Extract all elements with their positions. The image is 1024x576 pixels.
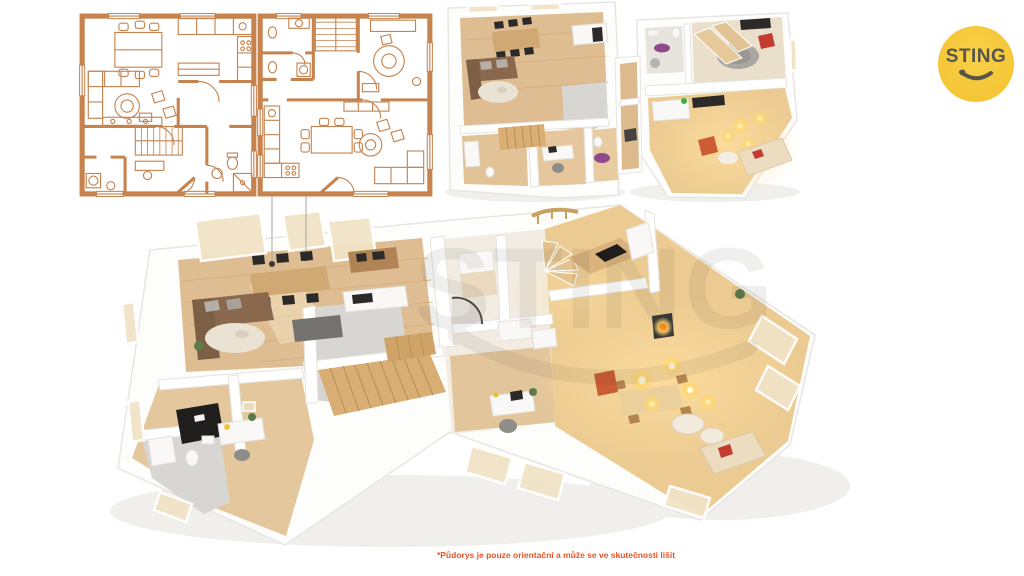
kitchen-2d <box>178 18 254 81</box>
sting-logo: STING <box>938 26 1014 102</box>
desk-2d <box>135 161 164 179</box>
floor-plan-3d-upper <box>440 0 805 202</box>
staircase-2d <box>135 126 182 155</box>
sideboard-2d <box>103 117 162 125</box>
floor-plan-2d-ground <box>78 12 258 198</box>
dining-table-2d <box>301 118 362 153</box>
floorplan-presentation-page: { "canvas": {"width": 1024, "height": 57… <box>0 0 1024 576</box>
connector-interior <box>620 62 639 170</box>
rug-2d <box>115 94 140 119</box>
orange-armchair <box>594 370 618 396</box>
door-arcs-2d <box>293 53 381 194</box>
staircase-3d <box>498 124 546 150</box>
living-rug <box>205 323 265 353</box>
dining-table-2d <box>115 21 162 78</box>
staircase-2d <box>315 16 356 51</box>
bedroom-2d <box>362 20 420 92</box>
right-block-interior <box>645 17 800 200</box>
disclaimer-text: *Půdorys je pouze orientační a může se v… <box>88 550 1024 560</box>
bathrooms-2d <box>268 18 310 76</box>
fireplace <box>652 313 674 339</box>
floor-plan-3d-ground-large <box>100 196 880 556</box>
left-block-interior <box>460 3 618 187</box>
inner-walls <box>82 81 254 193</box>
living-2d <box>359 119 423 183</box>
floor-plan-2d-upper <box>256 12 434 198</box>
bathroom-2d <box>212 153 252 192</box>
utility-room-2d <box>86 173 115 189</box>
sting-logo-text: STING <box>946 46 1007 68</box>
plant <box>194 341 204 351</box>
rug-3d <box>478 81 518 103</box>
logo-smile-icon <box>958 69 994 82</box>
round-table <box>672 414 704 434</box>
kitchen-3d <box>572 23 608 45</box>
